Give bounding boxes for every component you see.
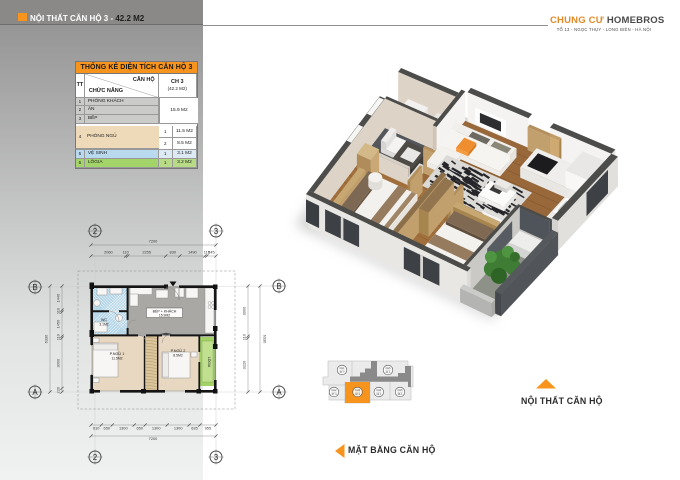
svg-text:P.NGỦ 1: P.NGỦ 1 — [110, 351, 125, 356]
svg-text:110: 110 — [56, 333, 61, 340]
svg-text:1300: 1300 — [119, 426, 128, 431]
svg-text:110: 110 — [56, 307, 61, 314]
svg-text:P.NGỦ 2: P.NGỦ 2 — [171, 348, 186, 353]
svg-text:3220: 3220 — [242, 360, 247, 369]
svg-text:42.1: 42.1 — [376, 392, 382, 396]
svg-text:1450: 1450 — [56, 319, 61, 328]
svg-text:110: 110 — [123, 250, 130, 255]
svg-text:2: 2 — [93, 227, 98, 236]
svg-text:37.7: 37.7 — [339, 370, 345, 374]
svg-text:2255: 2255 — [142, 250, 151, 255]
svg-text:LÔGIA: LÔGIA — [207, 357, 212, 368]
svg-text:CH1: CH1 — [339, 366, 345, 370]
svg-text:650: 650 — [136, 426, 143, 431]
svg-text:1440: 1440 — [56, 293, 61, 302]
svg-text:830: 830 — [170, 250, 177, 255]
svg-text:6330: 6330 — [263, 335, 268, 344]
svg-text:3: 3 — [214, 453, 219, 462]
svg-text:37.4: 37.4 — [331, 392, 337, 396]
svg-text:7200: 7200 — [149, 239, 158, 244]
svg-text:CH5: CH5 — [397, 388, 403, 392]
svg-text:B: B — [32, 283, 37, 292]
svg-text:41.1: 41.1 — [385, 370, 391, 374]
svg-text:15.9M2: 15.9M2 — [159, 314, 170, 318]
svg-text:B: B — [276, 282, 281, 291]
svg-text:CH2: CH2 — [331, 388, 337, 392]
svg-text:CH3: CH3 — [355, 388, 361, 392]
svg-text:545: 545 — [208, 250, 215, 255]
svg-text:635: 635 — [191, 426, 198, 431]
svg-text:220: 220 — [56, 386, 61, 393]
svg-text:CH6: CH6 — [385, 366, 391, 370]
svg-text:2060: 2060 — [104, 250, 113, 255]
svg-text:1300: 1300 — [152, 426, 161, 431]
svg-text:3000: 3000 — [56, 358, 61, 367]
svg-text:7200: 7200 — [149, 436, 158, 441]
svg-text:8.5M2: 8.5M2 — [173, 354, 183, 358]
svg-text:6330: 6330 — [44, 334, 49, 343]
svg-text:1490: 1490 — [188, 250, 197, 255]
svg-text:610: 610 — [93, 426, 100, 431]
svg-text:CH4: CH4 — [376, 388, 382, 392]
svg-text:3.1M2: 3.1M2 — [99, 322, 108, 326]
svg-text:11.5M2: 11.5M2 — [111, 357, 122, 361]
svg-text:42.2: 42.2 — [355, 392, 361, 396]
svg-text:WC: WC — [101, 318, 107, 322]
svg-text:955: 955 — [205, 426, 212, 431]
svg-text:3: 3 — [214, 227, 219, 236]
svg-text:A: A — [276, 388, 282, 397]
svg-text:36.1: 36.1 — [397, 392, 403, 396]
svg-text:3000: 3000 — [242, 306, 247, 315]
svg-text:A: A — [32, 388, 38, 397]
svg-text:110: 110 — [242, 333, 247, 340]
svg-text:2: 2 — [93, 453, 98, 462]
svg-text:1300: 1300 — [174, 426, 183, 431]
svg-text:650: 650 — [104, 426, 111, 431]
